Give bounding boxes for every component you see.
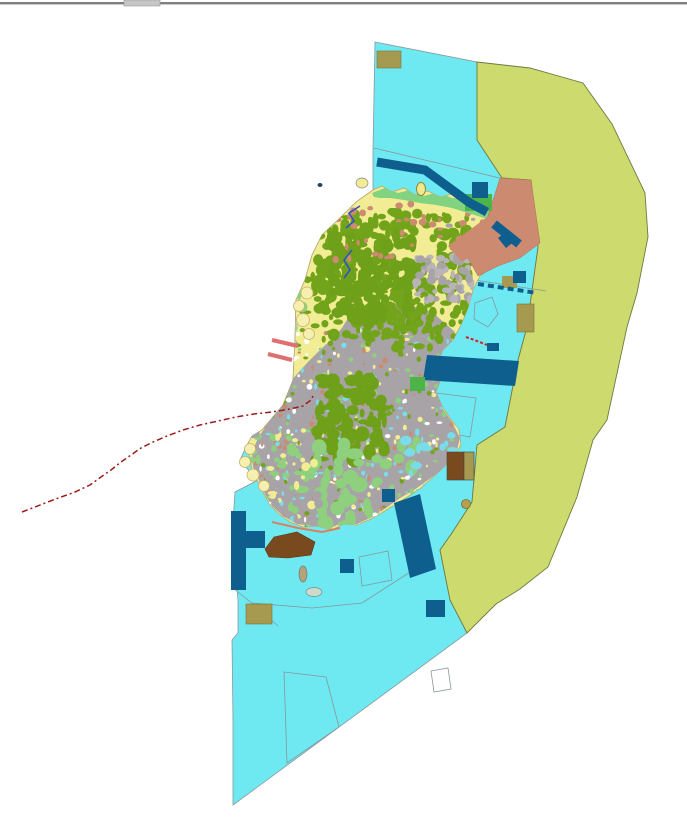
khaki-block-beside-brown xyxy=(464,452,474,480)
coast-scallop-5 xyxy=(245,444,256,455)
coast-scallop-7 xyxy=(247,469,259,481)
islet-north xyxy=(356,178,368,188)
blue-square-south-2 xyxy=(426,600,445,617)
khaki-dot-east xyxy=(462,500,471,509)
coast-scallop-4 xyxy=(304,329,315,340)
blue-jetty-block xyxy=(487,343,499,351)
coast-scallop-1 xyxy=(301,287,313,299)
blue-square-south-1 xyxy=(340,559,354,573)
window-divider-line xyxy=(0,2,687,4)
window-divider-handle[interactable] xyxy=(124,0,160,6)
khaki-block-east-large xyxy=(517,304,534,332)
map-canvas xyxy=(0,0,687,821)
pier-vertical xyxy=(231,511,246,590)
blue-square-east xyxy=(513,271,526,283)
pier-arm xyxy=(246,531,265,548)
coast-scallop-6 xyxy=(240,457,251,468)
islet-south-2 xyxy=(306,588,322,597)
outlined-parcel-small xyxy=(431,668,451,692)
islet-south-1 xyxy=(299,566,307,582)
khaki-block-bottom xyxy=(246,604,272,624)
islet-dot-north xyxy=(318,183,323,187)
salmon-road-stub-1 xyxy=(272,340,298,346)
blue-square-north xyxy=(472,182,488,198)
harbor-band-southeast-nub xyxy=(382,489,395,502)
khaki-block-north xyxy=(377,51,401,68)
green-facility-block-east xyxy=(410,377,425,391)
map-svg xyxy=(0,0,687,821)
salmon-road-stub-2 xyxy=(268,354,292,360)
window-divider-highlight xyxy=(0,4,687,5)
coast-scallop-8 xyxy=(259,481,270,492)
buoy-ellipse-north xyxy=(417,183,426,196)
coast-scallop-2 xyxy=(294,301,305,312)
brown-block-east xyxy=(447,452,464,480)
coast-scallop-3 xyxy=(297,314,310,327)
